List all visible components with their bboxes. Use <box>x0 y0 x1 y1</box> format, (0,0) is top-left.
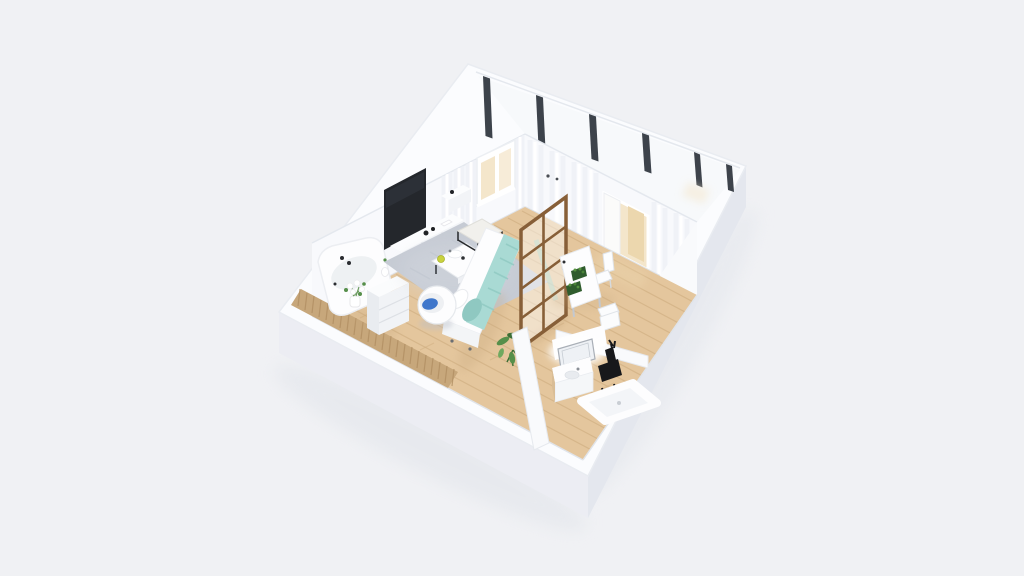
table-candle <box>563 261 566 264</box>
floorplan-render <box>0 0 1024 576</box>
cabinet-decor-dot <box>450 190 454 194</box>
ball-chair <box>418 286 456 330</box>
door-leaf <box>604 193 620 255</box>
table-decor-dot <box>461 256 465 260</box>
sofa-leg <box>450 339 453 342</box>
faucet-dot <box>577 368 580 371</box>
curtain-bracket-dot <box>556 178 559 181</box>
sink-basin <box>565 371 579 379</box>
sofa-leg <box>468 347 471 350</box>
dresser-vase <box>382 268 389 277</box>
floorplan-stage <box>0 0 1024 576</box>
table-decor-dot <box>449 250 452 253</box>
tub-drain <box>617 401 621 405</box>
console-decor-dot <box>431 227 435 231</box>
table-decor-cup <box>438 256 445 263</box>
console-decor-dot <box>424 231 429 236</box>
curtain-bracket-dot <box>546 174 549 177</box>
